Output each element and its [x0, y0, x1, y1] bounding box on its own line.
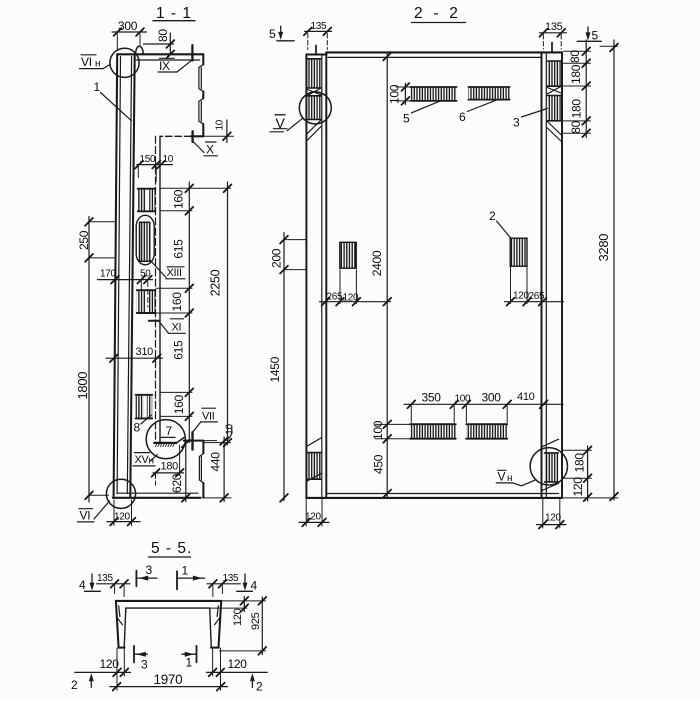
svg-text:6: 6 — [459, 110, 466, 124]
svg-text:310: 310 — [136, 346, 154, 358]
svg-text:XIII: XIII — [167, 267, 183, 279]
svg-text:1800: 1800 — [75, 372, 90, 400]
svg-text:180: 180 — [569, 99, 583, 119]
svg-text:5: 5 — [269, 27, 276, 41]
svg-text:450: 450 — [372, 454, 386, 474]
svg-text:1: 1 — [94, 80, 101, 94]
svg-text:XV: XV — [135, 454, 150, 466]
svg-text:VI: VI — [81, 55, 92, 69]
svg-text:180: 180 — [573, 453, 587, 473]
svg-text:265: 265 — [529, 291, 546, 302]
svg-text:н: н — [95, 59, 101, 70]
svg-text:3: 3 — [146, 563, 153, 577]
svg-text:2: 2 — [256, 680, 263, 694]
svg-text:10: 10 — [215, 119, 226, 130]
svg-text:XI: XI — [172, 321, 182, 333]
svg-text:50: 50 — [140, 268, 151, 279]
svg-text:5: 5 — [592, 29, 599, 43]
svg-text:4: 4 — [251, 578, 258, 592]
svg-text:440: 440 — [209, 452, 223, 472]
svg-text:1: 1 — [182, 564, 189, 578]
svg-text:2: 2 — [489, 209, 496, 223]
svg-text:150: 150 — [140, 154, 157, 165]
svg-text:250: 250 — [77, 230, 91, 250]
svg-text:3: 3 — [141, 658, 148, 672]
svg-text:925: 925 — [250, 612, 262, 630]
svg-text:3280: 3280 — [596, 234, 611, 262]
svg-text:X: X — [206, 143, 214, 157]
svg-text:120: 120 — [305, 512, 322, 523]
svg-text:120: 120 — [228, 657, 248, 671]
svg-text:8: 8 — [134, 421, 141, 435]
svg-text:170: 170 — [100, 268, 117, 279]
svg-text:620: 620 — [170, 473, 184, 493]
svg-text:1: 1 — [186, 656, 193, 670]
svg-text:120: 120 — [343, 292, 360, 303]
svg-text:180: 180 — [161, 461, 179, 473]
svg-text:300: 300 — [118, 19, 138, 33]
svg-text:180: 180 — [569, 64, 583, 84]
svg-text:80: 80 — [568, 50, 582, 63]
svg-text:200: 200 — [270, 248, 284, 268]
svg-text:120: 120 — [513, 290, 530, 301]
svg-text:2400: 2400 — [370, 250, 384, 276]
svg-text:10: 10 — [163, 154, 174, 165]
svg-text:5 - 5.: 5 - 5. — [151, 540, 192, 557]
svg-text:80: 80 — [569, 120, 583, 133]
svg-text:100: 100 — [371, 420, 385, 440]
svg-text:2250: 2250 — [209, 269, 223, 296]
svg-text:135: 135 — [97, 573, 114, 584]
svg-text:135: 135 — [223, 573, 240, 584]
svg-text:1970: 1970 — [154, 672, 183, 687]
svg-text:5: 5 — [403, 112, 410, 126]
svg-text:IX: IX — [159, 59, 170, 73]
svg-text:120: 120 — [545, 513, 562, 524]
svg-text:160: 160 — [172, 189, 186, 209]
svg-text:80: 80 — [156, 29, 170, 42]
svg-text:615: 615 — [172, 340, 186, 360]
svg-text:135: 135 — [311, 21, 328, 32]
svg-text:350: 350 — [422, 390, 442, 404]
svg-text:VII: VII — [202, 410, 215, 422]
svg-text:3: 3 — [513, 116, 520, 130]
svg-text:10: 10 — [224, 424, 235, 435]
svg-text:VI: VI — [80, 509, 91, 523]
svg-text:2 - 2: 2 - 2 — [414, 5, 461, 22]
svg-text:615: 615 — [172, 239, 186, 259]
svg-text:120: 120 — [571, 477, 585, 497]
svg-text:100: 100 — [455, 393, 472, 404]
svg-text:120: 120 — [100, 657, 120, 671]
svg-text:100: 100 — [387, 84, 401, 104]
svg-text:7: 7 — [166, 424, 173, 438]
svg-text:4: 4 — [79, 578, 86, 592]
svg-text:410: 410 — [517, 391, 535, 403]
svg-text:160: 160 — [170, 292, 184, 312]
svg-text:135: 135 — [545, 21, 563, 33]
svg-text:120: 120 — [232, 608, 244, 626]
svg-text:V: V — [498, 470, 506, 484]
svg-text:1 - 1: 1 - 1 — [156, 5, 192, 22]
svg-text:1450: 1450 — [268, 356, 282, 382]
svg-text:160: 160 — [172, 394, 186, 414]
svg-text:н: н — [149, 456, 155, 467]
svg-text:300: 300 — [482, 390, 502, 404]
svg-text:2: 2 — [71, 678, 78, 692]
svg-text:120: 120 — [114, 512, 131, 523]
svg-text:265: 265 — [327, 291, 344, 302]
